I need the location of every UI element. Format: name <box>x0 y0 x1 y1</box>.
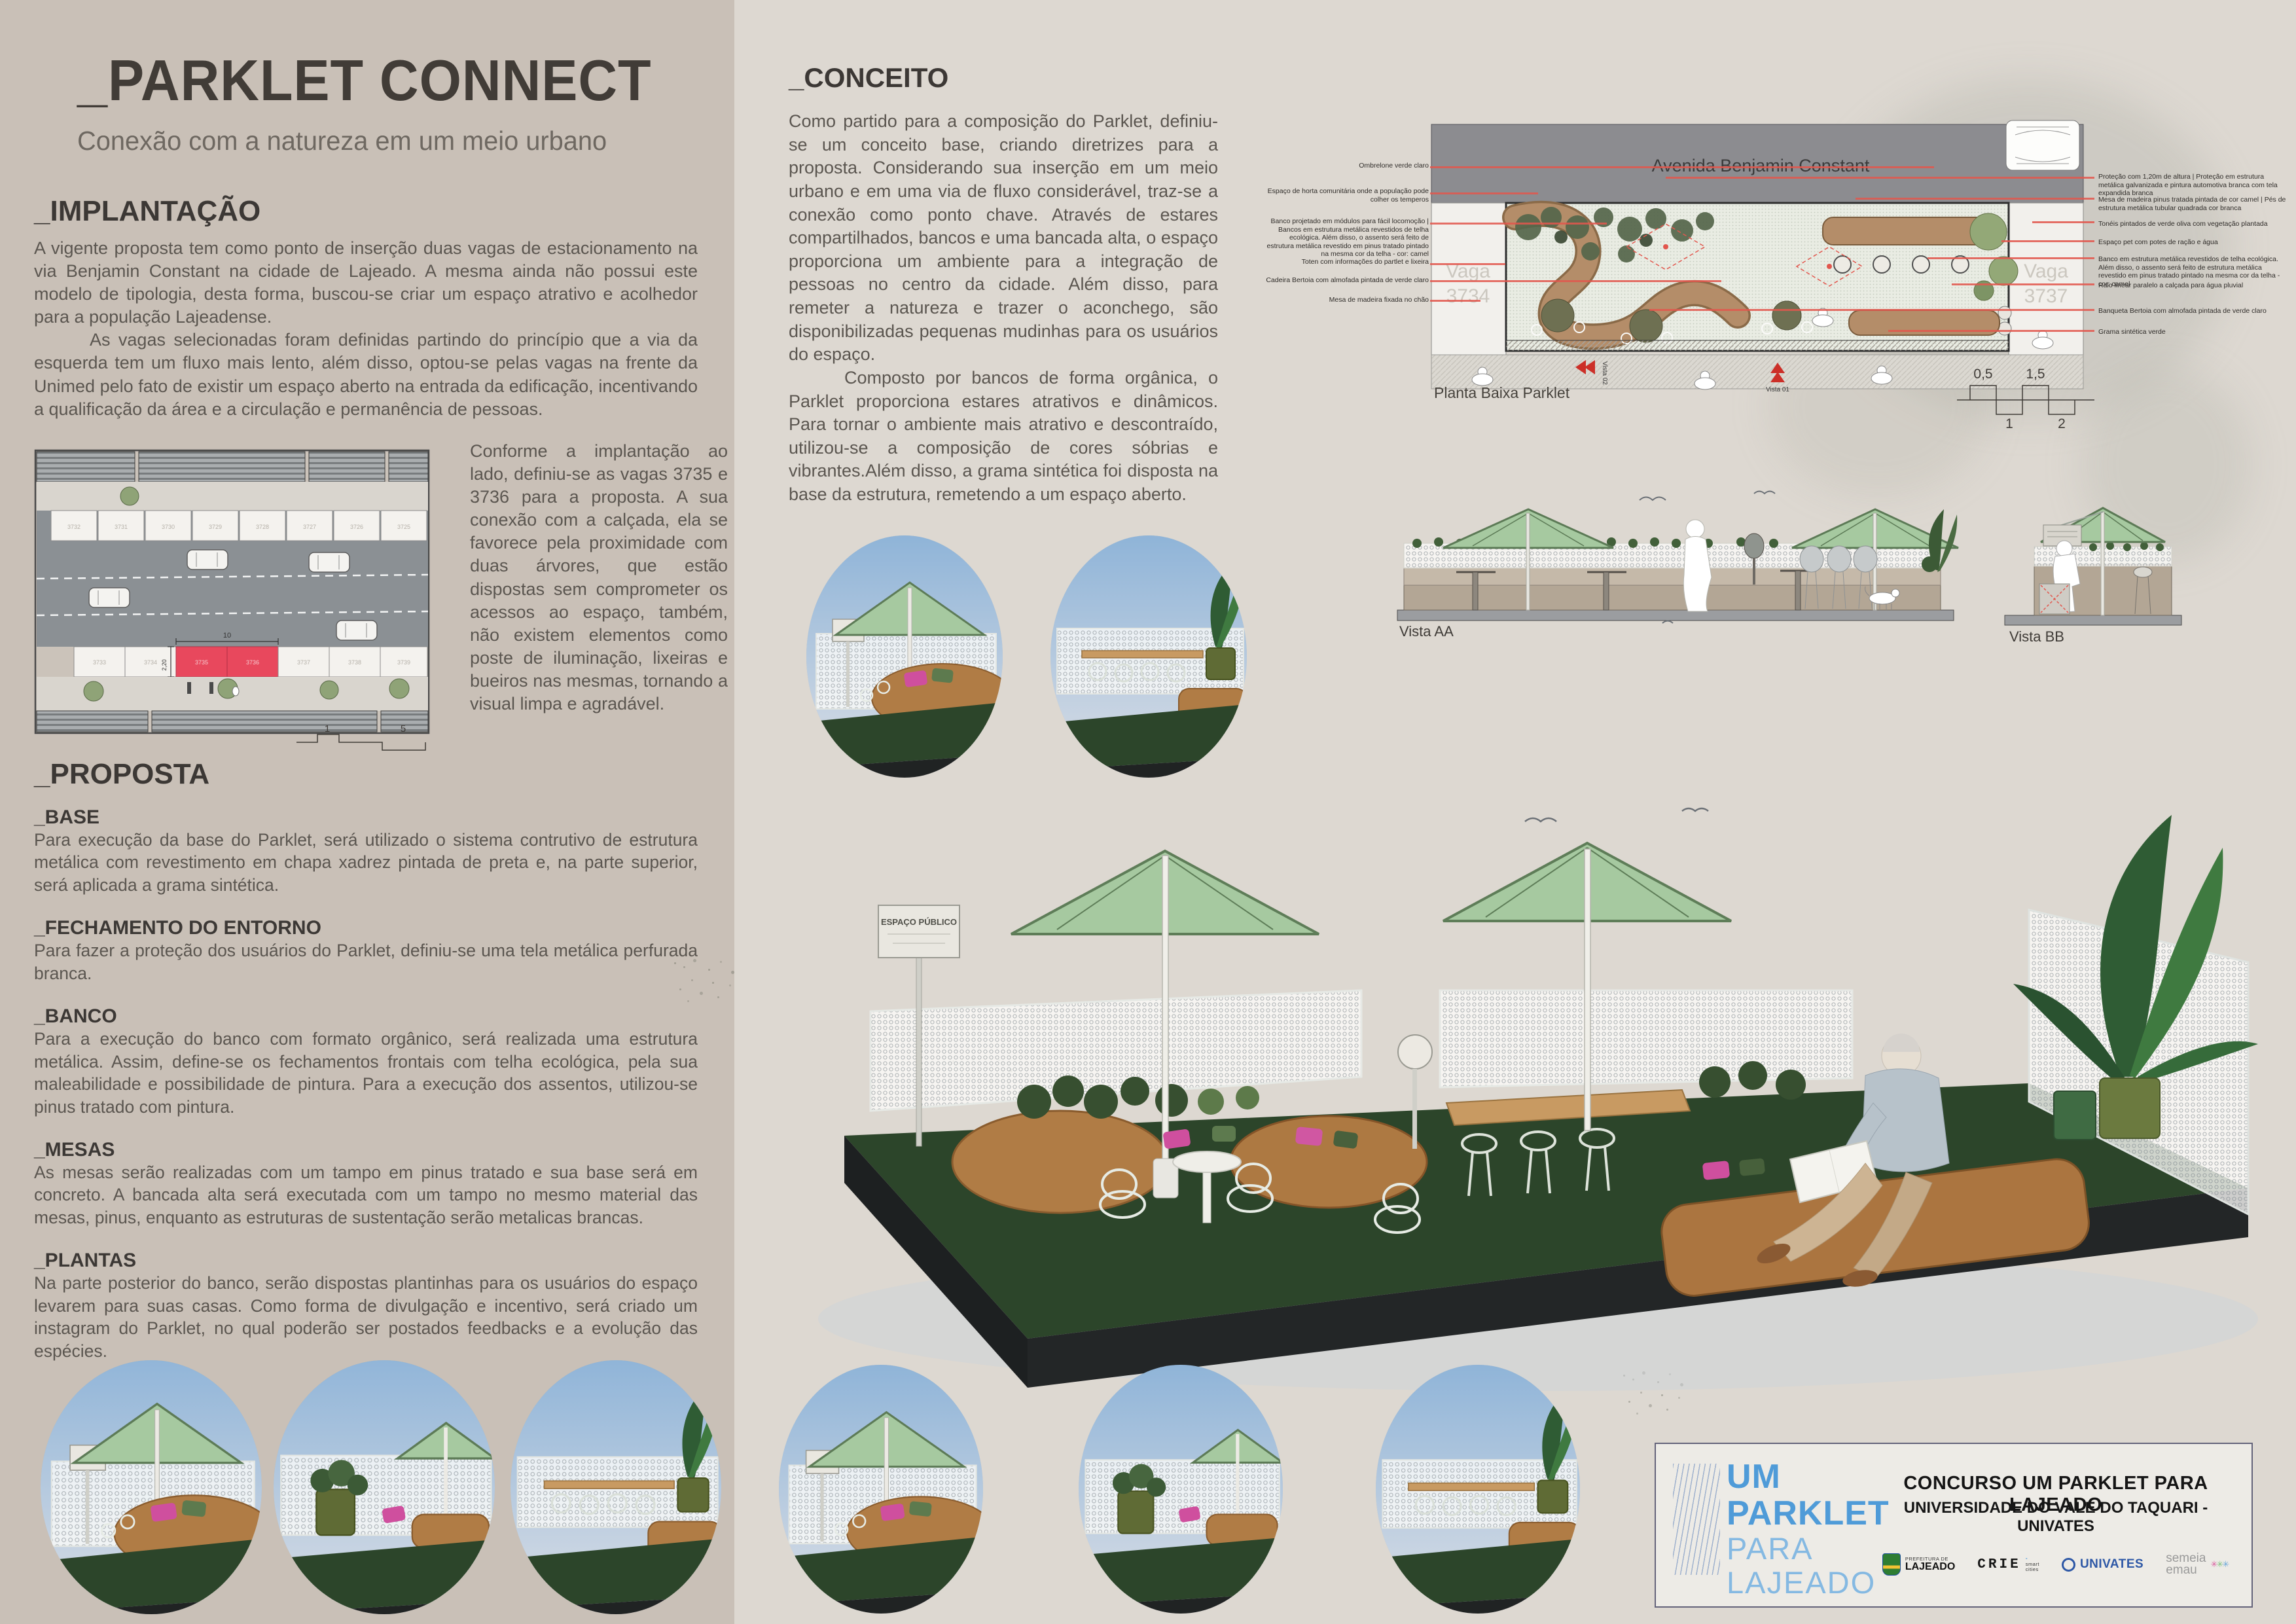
facades-top <box>37 452 428 482</box>
birds <box>1525 808 1708 821</box>
plan-scale: 0,5 1,5 1 2 <box>1954 364 2098 433</box>
svg-text:3725: 3725 <box>397 524 410 530</box>
plan-caption: Planta Baixa Parklet <box>1434 384 1570 401</box>
leader-line <box>1952 283 2094 285</box>
svg-text:1,5: 1,5 <box>2026 367 2045 382</box>
render-photo-circle <box>1079 1365 1283 1614</box>
section-body: Na parte posterior do banco, serão dispo… <box>34 1272 698 1362</box>
proposta-heading: _PROPOSTA <box>34 758 209 791</box>
page-title: _PARKLET CONNECT <box>77 47 652 114</box>
mesh-fence-left <box>870 990 1361 1111</box>
leader-line <box>1666 177 2094 179</box>
partner-logos: PREFEITURA DE LAJEADO CRIE ° smart citie… <box>1859 1553 2251 1576</box>
section-heading: _BANCO <box>34 1005 698 1028</box>
svg-text:3729: 3729 <box>209 524 222 530</box>
annotation-toten: Toten com informações do partlet e lixei… <box>1262 258 1429 266</box>
svg-text:3728: 3728 <box>256 524 269 530</box>
annotation-ombrelone: Ombrelone verde claro <box>1262 162 1429 170</box>
render-photo-circle <box>511 1360 721 1614</box>
facades-bottom <box>37 711 428 732</box>
conceito-p2: Composto por bancos de forma orgânica, o… <box>789 367 1218 507</box>
annotation-mesa-madeira: Mesa de madeira fixada no chão <box>1262 296 1429 304</box>
section-heading: _BASE <box>34 806 698 829</box>
annotation-grama: Grama sintética verde <box>2098 328 2289 336</box>
svg-text:1: 1 <box>2005 416 2013 431</box>
svg-text:3731: 3731 <box>115 524 128 530</box>
svg-text:3736: 3736 <box>246 659 259 666</box>
section-body: Para a execução do banco com formato org… <box>34 1028 698 1118</box>
umbrella-2 <box>1443 843 1731 1130</box>
lajeado-crest-icon <box>1882 1553 1901 1576</box>
svg-text:3733: 3733 <box>93 659 106 666</box>
leader-line <box>1649 309 2094 311</box>
render-photo-circle <box>806 535 1003 778</box>
ground <box>2005 615 2181 625</box>
dim-height-label: 2,20 <box>161 659 168 671</box>
crie-text: CRIE <box>1977 1557 2020 1572</box>
svg-text:5: 5 <box>401 723 406 734</box>
section-banco: _BANCO Para a execução do banco com form… <box>34 1005 698 1118</box>
svg-text:3734: 3734 <box>144 659 157 666</box>
section-fechamento: _FECHAMENTO DO ENTORNO Para fazer a prot… <box>34 917 698 984</box>
svg-text:3735: 3735 <box>195 659 208 666</box>
sidewalk-top <box>37 482 428 511</box>
svg-text:Vaga: Vaga <box>2024 261 2068 282</box>
round-booth <box>1230 1116 1427 1208</box>
competition-board: _PARKLET CONNECT Conexão com a natureza … <box>0 0 2296 1624</box>
section-body: As mesas serão realizadas com um tampo e… <box>34 1161 698 1229</box>
curved-bench-left <box>952 1111 1168 1213</box>
implantacao-p2: As vagas selecionadas foram definidas pa… <box>34 329 698 420</box>
svg-text:3737: 3737 <box>297 659 310 666</box>
vista-aa-label: Vista AA <box>1399 623 1454 640</box>
lajeado-logo: PREFEITURA DE LAJEADO <box>1882 1553 1955 1576</box>
univates-text: UNIVATES <box>2080 1557 2144 1572</box>
vaga-strip-left <box>1431 203 1506 364</box>
contest-subtitle: UNIVERSIDADE DO VALE DO TAQUARI - UNIVAT… <box>1864 1499 2248 1536</box>
emau-text: emau <box>2166 1564 2206 1576</box>
svg-text:3737: 3737 <box>2024 285 2068 307</box>
svg-text:3726: 3726 <box>350 524 363 530</box>
annotation-protecao: Proteção com 1,20m de altura | Proteção … <box>2098 173 2289 198</box>
site-plan-diagram: 3732 3731 3730 3729 3728 3727 3726 3725 <box>31 446 439 753</box>
leader-line <box>1856 198 2094 200</box>
annotation-banco-modulos: Banco projetado em módulos para fácil lo… <box>1262 217 1429 259</box>
dandelion-sparks-icon: ✳✳✳ <box>2210 1559 2228 1570</box>
univates-logo: UNIVATES <box>2062 1557 2144 1572</box>
lajeado-big-text: LAJEADO <box>1905 1562 1955 1572</box>
vista-bb-label: Vista BB <box>2009 628 2064 645</box>
leader-line <box>1430 223 1607 225</box>
crie-logo: CRIE ° smart cities <box>1977 1557 2039 1572</box>
tree <box>120 487 139 505</box>
leader-line <box>1430 300 1480 302</box>
render-photo-circle <box>1376 1365 1580 1614</box>
contest-banner: UM PARKLET PARA LAJEADO CONCURSO UM PARK… <box>1655 1443 2253 1608</box>
svg-text:2: 2 <box>2058 416 2066 431</box>
annotation-ralo: Ralo linear paralelo a calçada para água… <box>2098 281 2289 290</box>
svg-text:3739: 3739 <box>397 659 410 666</box>
annotation-banqueta: Banqueta Bertoia com almofada pintada de… <box>2098 307 2289 316</box>
vista-bb-drawing: Vista BB <box>1995 486 2191 646</box>
leader-line <box>2032 221 2094 223</box>
vista-aa-drawing: Vista AA <box>1388 486 1967 640</box>
crie-sub2: cities <box>2026 1567 2039 1572</box>
section-base: _BASE Para execução da base do Parklet, … <box>34 806 698 896</box>
annotation-mesa-pinus: Mesa de madeira pinus tratada pintada de… <box>2098 196 2289 212</box>
section-heading: _FECHAMENTO DO ENTORNO <box>34 917 698 939</box>
logo-deco-lines <box>1673 1464 1720 1575</box>
svg-text:3727: 3727 <box>303 524 316 530</box>
leader-line <box>1430 280 1721 282</box>
annotation-horta: Espaço de horta comunitária onde a popul… <box>1262 187 1429 204</box>
svg-text:3730: 3730 <box>162 524 175 530</box>
implantacao-p1: A vigente proposta tem como ponto de ins… <box>34 237 698 329</box>
section-body: Para execução da base do Parklet, será u… <box>34 829 698 896</box>
render-photo-circle <box>1050 535 1247 778</box>
section-heading: _PLANTAS <box>34 1250 698 1272</box>
svg-text:3732: 3732 <box>67 524 81 530</box>
annotation-cadeira: Cadeira Bertoia com almofada pintada de … <box>1262 276 1429 285</box>
svg-text:0,5: 0,5 <box>1973 367 1992 382</box>
leader-line <box>1430 263 1505 265</box>
implantacao-text: A vigente proposta tem como ponto de ins… <box>34 237 698 421</box>
linear-drain <box>1506 340 2009 351</box>
leader-line <box>1928 257 2094 259</box>
leader-line <box>1888 330 2094 332</box>
render-photo-circle <box>779 1365 983 1614</box>
svg-text:3738: 3738 <box>348 659 361 666</box>
street-label: Avenida Benjamin Constant <box>1652 156 1870 175</box>
leader-line <box>2001 240 2094 242</box>
conceito-text: Como partido para a composição do Parkle… <box>789 110 1218 507</box>
annotation-toneis: Tonéis pintados de verde oliva com veget… <box>2098 220 2289 228</box>
svg-text:Vista 01: Vista 01 <box>1766 386 1789 393</box>
render-photo-circle <box>274 1360 495 1614</box>
svg-text:3734: 3734 <box>1446 285 1490 307</box>
section-mesas: _MESAS As mesas serão realizadas com um … <box>34 1139 698 1229</box>
leader-line <box>1430 166 1934 168</box>
annotation-espaco-pet: Espaço pet com potes de ração e água <box>2098 238 2289 247</box>
svg-text:1: 1 <box>325 723 330 734</box>
sign-text: ESPAÇO PÚBLICO <box>881 917 957 927</box>
ground <box>1397 610 1954 621</box>
implantacao-side-note: Conforme a implantação ao lado, definiu-… <box>470 440 728 715</box>
conceito-heading: _CONCEITO <box>789 62 948 94</box>
floor-plan: Avenida Benjamin Constant <box>1430 119 2085 401</box>
semeia-emau-logo: semeia emau ✳✳✳ <box>2166 1553 2228 1576</box>
main-render: ESPAÇO PÚBLICO <box>753 795 2265 1394</box>
section-body: Para fazer a proteção dos usuários do Pa… <box>34 939 698 984</box>
section-heading: _MESAS <box>34 1139 698 1161</box>
univates-ring-icon <box>2062 1558 2075 1572</box>
implantacao-heading: _IMPLANTAÇÃO <box>34 195 260 228</box>
leader-line <box>1430 192 1538 194</box>
proposta-sections: _BASE Para execução da base do Parklet, … <box>34 806 698 1362</box>
crate <box>2039 584 2070 614</box>
dim-width-label: 10 <box>223 632 231 640</box>
parking-row-bottom: 3733 3734 3735 3736 3737 3738 3739 <box>74 647 427 677</box>
render-photo-circle <box>41 1360 262 1614</box>
car-top-view <box>2006 120 2079 170</box>
high-counter <box>1823 217 1986 245</box>
section-plantas: _PLANTAS Na parte posterior do banco, se… <box>34 1250 698 1362</box>
page-subtitle: Conexão com a natureza em um meio urbano <box>77 126 607 156</box>
svg-text:Vista 02: Vista 02 <box>1601 361 1608 385</box>
conceito-p1: Como partido para a composição do Parkle… <box>789 110 1218 367</box>
